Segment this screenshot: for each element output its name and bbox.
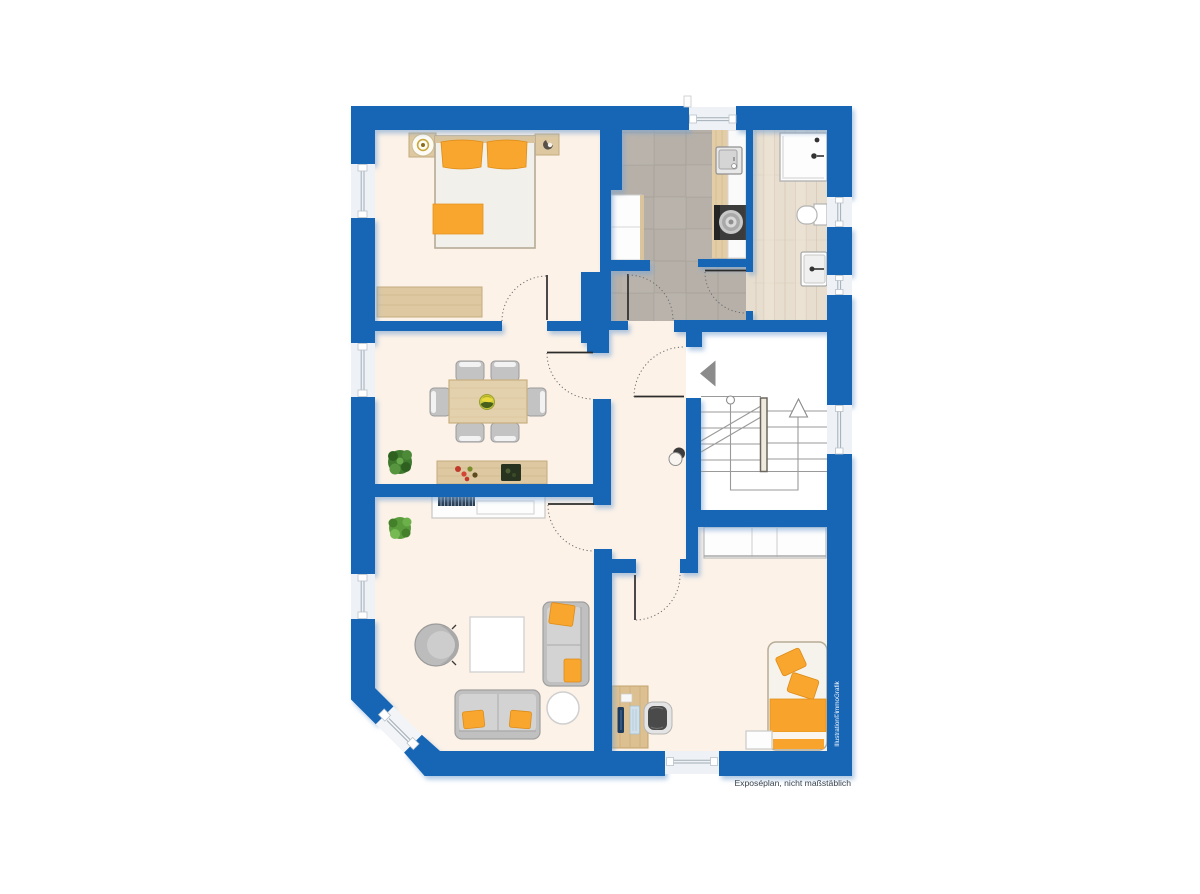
svg-text:Exposéplan, nicht maßstäblich: Exposéplan, nicht maßstäblich bbox=[734, 778, 851, 788]
svg-text:Illustration©immoGrafik: Illustration©immoGrafik bbox=[833, 680, 841, 746]
